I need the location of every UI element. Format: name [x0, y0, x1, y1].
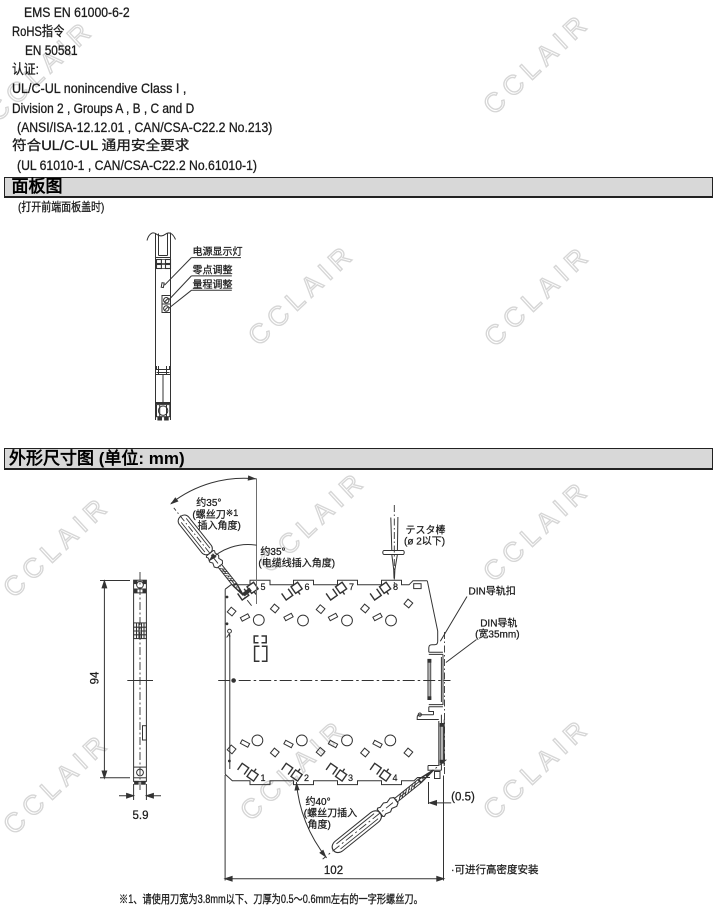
svg-text:94: 94 — [90, 671, 102, 684]
svg-text:(螺丝刀※1: (螺丝刀※1 — [192, 508, 238, 521]
svg-text:5.9: 5.9 — [133, 810, 149, 822]
svg-text:CCLAIR: CCLAIR — [478, 238, 597, 352]
svg-text:(0.5): (0.5) — [451, 792, 475, 804]
svg-text:(宽35mm): (宽35mm) — [475, 627, 519, 640]
svg-text:1: 1 — [260, 773, 265, 783]
svg-text:4: 4 — [392, 773, 397, 783]
svg-text:(电缆线插入角度): (电缆线插入角度) — [258, 556, 335, 569]
svg-text:约40°: 约40° — [306, 795, 331, 808]
svg-text:DIN导轨扣: DIN导轨扣 — [469, 584, 516, 597]
svg-text:CCLAIR: CCLAIR — [477, 6, 596, 120]
svg-text:·可进行高密度安装: ·可进行高密度安装 — [451, 863, 539, 876]
svg-text:7: 7 — [349, 582, 354, 592]
svg-text:(ø 2以下): (ø 2以下) — [404, 537, 445, 548]
svg-text:角度): 角度) — [308, 818, 331, 831]
svg-text:零点调整: 零点调整 — [193, 263, 233, 276]
svg-text:テスタ棒: テスタ棒 — [406, 523, 446, 536]
svg-text:插入角度): 插入角度) — [198, 519, 241, 532]
svg-text:约35°: 约35° — [196, 496, 221, 509]
svg-text:6: 6 — [304, 582, 309, 592]
svg-text:3: 3 — [348, 773, 353, 783]
svg-text:(螺丝刀插入: (螺丝刀插入 — [304, 807, 357, 820]
svg-text:约35°: 约35° — [260, 545, 285, 558]
svg-text:电源显示灯: 电源显示灯 — [193, 245, 243, 258]
svg-text:量程调整: 量程调整 — [193, 278, 233, 291]
svg-text:5: 5 — [260, 582, 265, 592]
svg-text:2: 2 — [304, 773, 309, 783]
svg-text:DIN导轨: DIN导轨 — [480, 617, 517, 630]
svg-text:8: 8 — [393, 582, 398, 592]
svg-text:102: 102 — [324, 865, 343, 877]
